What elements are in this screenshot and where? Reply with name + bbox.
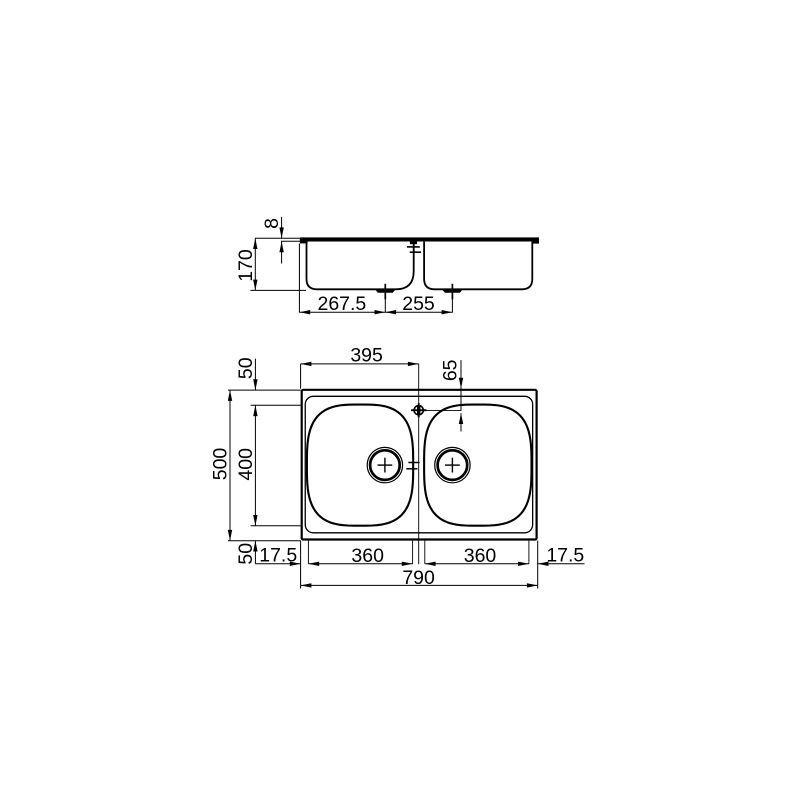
- svg-text:500: 500: [210, 448, 232, 481]
- svg-text:50: 50: [235, 543, 257, 565]
- svg-text:360: 360: [351, 545, 384, 567]
- svg-text:17.5: 17.5: [259, 545, 297, 567]
- svg-text:360: 360: [464, 545, 497, 567]
- svg-text:50: 50: [235, 357, 257, 379]
- svg-text:170: 170: [235, 249, 257, 282]
- svg-text:17.5: 17.5: [546, 545, 584, 567]
- svg-text:8: 8: [261, 218, 283, 229]
- svg-text:65: 65: [440, 359, 462, 381]
- svg-text:255: 255: [402, 293, 435, 315]
- svg-text:267.5: 267.5: [317, 293, 366, 315]
- svg-text:790: 790: [402, 567, 435, 589]
- svg-text:395: 395: [350, 344, 383, 366]
- svg-text:400: 400: [235, 448, 257, 481]
